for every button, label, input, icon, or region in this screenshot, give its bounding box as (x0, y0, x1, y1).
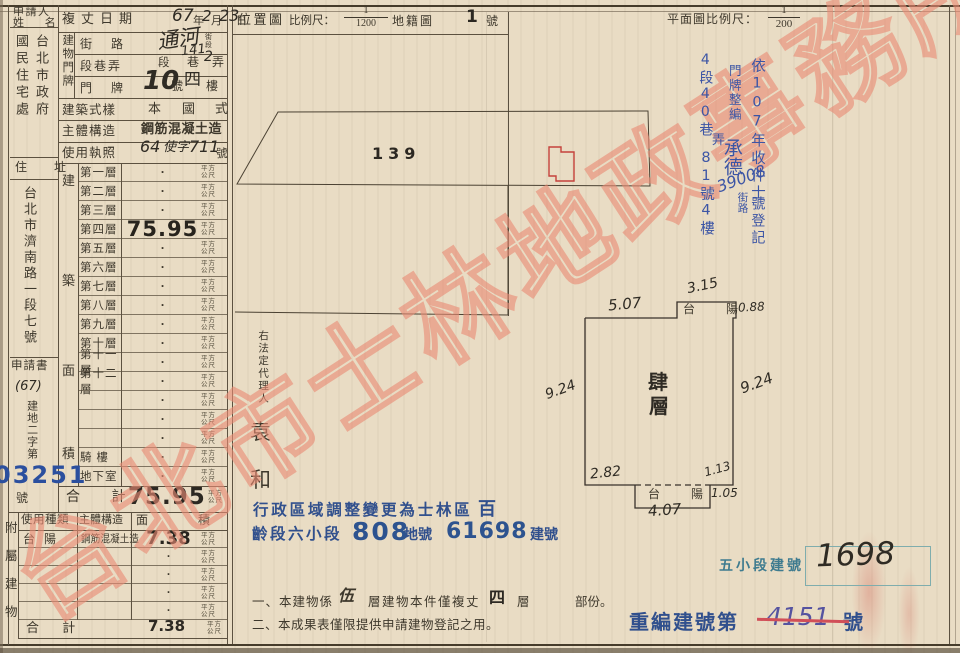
floor-area-value: · (124, 259, 201, 275)
application-doc-year: (67) (15, 380, 42, 393)
building-number-value: 1698 (815, 539, 895, 573)
floor-row: ·平方公尺 (78, 429, 227, 448)
door-row-label: 門 牌 (80, 82, 131, 96)
dim-balcony-bottom: 4.07 (648, 502, 682, 519)
floor-area-value: · (124, 316, 201, 332)
floorplan-left-wall (585, 318, 635, 485)
room-label-char-2: 層 (649, 396, 669, 416)
floor-label: 第四層 (78, 221, 124, 237)
new-parcel-number: 808 (352, 518, 410, 546)
floor-area-value: · (124, 164, 201, 180)
area-unit: 平方公尺 (201, 279, 227, 293)
alley-unit: 弄 (212, 56, 224, 70)
area-unit: 平方公尺 (201, 298, 227, 312)
floor-area-value: · (124, 240, 201, 256)
plate-label: 建物門牌 (60, 34, 73, 96)
floor-label: 第一層 (78, 164, 124, 180)
floors-rows: 第一層·平方公尺第二層·平方公尺第三層·平方公尺第四層75.95平方公尺第五層·… (78, 163, 227, 485)
blue-note-new-address-1: 4段40巷 (697, 52, 712, 138)
parcel-139-outline (237, 111, 650, 186)
annex-total-value: 7.38 (148, 619, 185, 634)
note1-part3: 層 (517, 595, 530, 609)
structure-value: 鋼筋混凝土造 (141, 122, 222, 137)
annex-row: ·平方公尺 (18, 566, 227, 584)
area-unit: 平方公尺 (201, 241, 227, 255)
map-sheet-unit: 號 (486, 15, 498, 29)
five-subsection-label: 五小段建號 (719, 559, 804, 574)
area-unit: 平方公尺 (201, 260, 227, 274)
legal-agent-label: 右法定代理人 (256, 330, 268, 414)
floor-label: 第六層 (78, 259, 124, 275)
floor-area-value: · (124, 468, 201, 484)
floor-row: 第一層·平方公尺 (78, 163, 227, 182)
annex-area-value: 7.38 (136, 528, 201, 549)
floor-area-value: · (124, 449, 201, 465)
floor-area-value: · (124, 392, 201, 408)
floor-row: 騎 樓·平方公尺 (78, 448, 227, 467)
dim-top-left: 5.07 (607, 296, 642, 314)
note1-part1: 一、本建物係 (252, 595, 333, 609)
floor-number-unit: 樓 (206, 80, 218, 94)
annex-area-value: · (136, 567, 201, 582)
legal-agent-name-char-1: 袁 (250, 420, 271, 444)
floor-row: 第六層·平方公尺 (78, 258, 227, 277)
building-style-label: 建築式樣 (62, 103, 116, 117)
annex-total-label: 合 計 (26, 621, 85, 636)
floor-area-value: · (124, 202, 201, 218)
license-series-value: 使字 (163, 141, 189, 154)
annex-structure-header: 主體構造 (79, 514, 123, 527)
blue-note-street-suffix: 街路 (736, 192, 748, 224)
parcel-number: 139 (372, 146, 420, 162)
annex-row: 台 陽鋼筋混凝土造7.38平方公尺 (18, 530, 227, 548)
note1-surveyed-floor: 四 (489, 590, 505, 606)
area-unit: 平方公尺 (201, 222, 227, 236)
license-year-value: 64 (140, 139, 160, 155)
room-label-char-1: 肆 (648, 372, 668, 392)
floor-area-value: · (124, 354, 201, 370)
area-unit: 平方公尺 (201, 355, 227, 369)
annex-row: ·平方公尺 (18, 584, 227, 602)
floor-label: 第七層 (78, 278, 124, 294)
floor-area-value: · (124, 183, 201, 199)
area-unit: 平方公尺 (201, 374, 227, 388)
note1-part2: 層建物本件僅複丈 (368, 595, 480, 609)
dim-balcony-right: 0.88 (738, 300, 765, 313)
note1-part4: 部份。 (575, 595, 613, 609)
area-unit: 平方公尺 (201, 586, 227, 600)
annex-area-header-2: 積 (198, 514, 210, 528)
applicant-address: 台北市濟南路一段七號 (21, 186, 36, 358)
building-number-unit: 建號 (530, 528, 558, 543)
admin-rezoning-stamp-line2: 齡段六小段 (252, 526, 342, 543)
license-label: 使用執照 (62, 146, 116, 160)
floor-row: 第二層·平方公尺 (78, 182, 227, 201)
annex-rows: 台 陽鋼筋混凝土造7.38平方公尺·平方公尺·平方公尺·平方公尺·平方公尺 (18, 530, 227, 620)
area-unit: 平方公尺 (201, 568, 227, 582)
blue-note-registration-suffix: 號登記 (749, 196, 764, 250)
dim-bottom-left: 2.82 (589, 464, 621, 481)
floor-row: 第七層·平方公尺 (78, 277, 227, 296)
floor-row: 第八層·平方公尺 (78, 296, 227, 315)
floor-label: 第十二層 (78, 365, 124, 397)
floor-row: 第十二層·平方公尺 (78, 372, 227, 391)
section-row-label: 段巷弄 (80, 60, 122, 74)
annex-side-char-3: 建 (5, 577, 18, 591)
annex-row: ·平方公尺 (18, 602, 227, 620)
applicant-org-left: 國民住宅處 (13, 34, 28, 154)
area-unit: 平方公尺 (201, 203, 227, 217)
annex-use-header: 使用種類 (21, 514, 69, 527)
floor-row: 地下室·平方公尺 (78, 467, 227, 486)
bottom-balcony-label: 台 陽 (648, 488, 717, 502)
renumber-label: 重編建號第 (629, 612, 739, 634)
lower-parcel-outline (235, 186, 508, 315)
location-map-scale-label: 比例尺： (289, 15, 335, 28)
annex-structure-value: 鋼筋混凝土造 (81, 531, 132, 546)
survey-year-value: 67 (172, 8, 194, 25)
floors-side-char-4: 積 (62, 447, 75, 462)
floor-area-value: · (124, 297, 201, 313)
floor-area-value: · (124, 335, 201, 351)
survey-date-label: 複丈日期 (62, 12, 138, 27)
blue-note-new-address-3: 81號4樓 (697, 150, 713, 242)
annex-row: ·平方公尺 (18, 548, 227, 566)
floor-area-value: · (124, 373, 201, 389)
application-doc-number-stamp: 03251 (0, 462, 88, 488)
renumber-old-value: 4151 (766, 604, 830, 629)
area-unit: 平方公尺 (201, 450, 227, 464)
location-map-scale-fraction: 11200 (344, 6, 388, 29)
floorplan-scale-fraction: 1200 (768, 5, 800, 30)
street-type-tiny: 街段 (205, 33, 212, 49)
floor-number-value: 四 (184, 72, 201, 89)
area-unit: 平方公尺 (201, 469, 227, 483)
application-doc-label: 申請書 (11, 360, 49, 373)
annex-area-value: · (136, 585, 201, 600)
annex-use-value: 台 陽 (18, 530, 81, 547)
annex-total-unit: 平方公尺 (207, 621, 233, 635)
annex-side-char-4: 物 (5, 605, 18, 619)
annex-area-value: · (136, 603, 201, 618)
note2: 二、本成果表僅限提供申請建物登記之用。 (252, 618, 499, 632)
legal-agent-name-char-2: 和 (250, 468, 271, 492)
admin-rezoning-stamp-line1-end: 百 (478, 500, 496, 520)
blue-note-new-address-2: 弄 (712, 134, 725, 148)
scanned-form: 台北市士林地政事務所 (0, 0, 960, 653)
floor-row: ·平方公尺 (78, 410, 227, 429)
area-unit: 平方公尺 (201, 431, 227, 445)
structure-label: 主體構造 (62, 124, 116, 138)
floors-total-value: 75.95 (128, 486, 206, 509)
floor-label: 第三層 (78, 202, 124, 218)
building-style-value-2: 國 (182, 102, 195, 117)
cadastral-map-label: 地籍圖 (392, 15, 434, 29)
lane-unit: 巷 (187, 56, 199, 70)
floor-label: 第五層 (78, 240, 124, 256)
building-location-marker (549, 147, 574, 181)
floor-row: 第四層75.95平方公尺 (78, 220, 227, 239)
annex-area-header-1: 面 (136, 514, 148, 528)
area-unit: 平方公尺 (201, 184, 227, 198)
building-style-value-3: 式 (215, 102, 228, 117)
area-unit: 平方公尺 (201, 532, 227, 546)
area-unit: 平方公尺 (201, 550, 227, 564)
dim-step: 1.05 (711, 487, 738, 499)
floors-side-char-1: 建 (62, 174, 75, 189)
floor-label: 第八層 (78, 297, 124, 313)
floors-total-unit: 平方公尺 (208, 490, 234, 504)
application-doc-suffix: 號 (16, 492, 28, 506)
floor-area-value: · (124, 430, 201, 446)
area-unit: 平方公尺 (201, 393, 227, 407)
parcel-number-unit: 地號 (404, 528, 432, 543)
door-number-unit: 號 (171, 80, 183, 94)
annex-area-value: · (136, 549, 201, 564)
floor-area-value: 75.95 (124, 217, 201, 241)
area-unit: 平方公尺 (201, 165, 227, 179)
annex-side-char-2: 屬 (5, 549, 18, 563)
area-unit: 平方公尺 (201, 317, 227, 331)
floor-row: 第五層·平方公尺 (78, 239, 227, 258)
floor-row: 第九層·平方公尺 (78, 315, 227, 334)
new-building-number: 61698 (446, 520, 528, 544)
license-number-value: 711 (189, 139, 220, 155)
area-unit: 平方公尺 (201, 604, 227, 618)
floors-side-char-2: 築 (62, 274, 75, 289)
floorplan-scale-label: 平面圖比例尺： (667, 13, 758, 27)
building-style-value-1: 本 (148, 102, 161, 117)
license-suffix: 號 (216, 148, 228, 161)
map-sheet-number: 1 (466, 9, 478, 26)
applicant-label-line2: 姓 名 (13, 17, 65, 30)
applicant-org-right: 台北市政府 (33, 34, 48, 154)
note1-floors-value: 伍 (338, 588, 354, 606)
blue-note-replate: 門牌整編 (727, 64, 741, 134)
floor-label: 第二層 (78, 183, 124, 199)
annex-side-char-1: 附 (5, 521, 18, 535)
area-unit: 平方公尺 (201, 336, 227, 350)
location-map-title: 位置圖 (238, 13, 285, 28)
area-unit: 平方公尺 (201, 412, 227, 426)
street-row-label: 街 路 (80, 38, 131, 52)
floor-area-value: · (124, 278, 201, 294)
floor-label: 第九層 (78, 316, 124, 332)
floor-area-value: · (124, 411, 201, 427)
floors-side-char-3: 面 (62, 364, 75, 379)
